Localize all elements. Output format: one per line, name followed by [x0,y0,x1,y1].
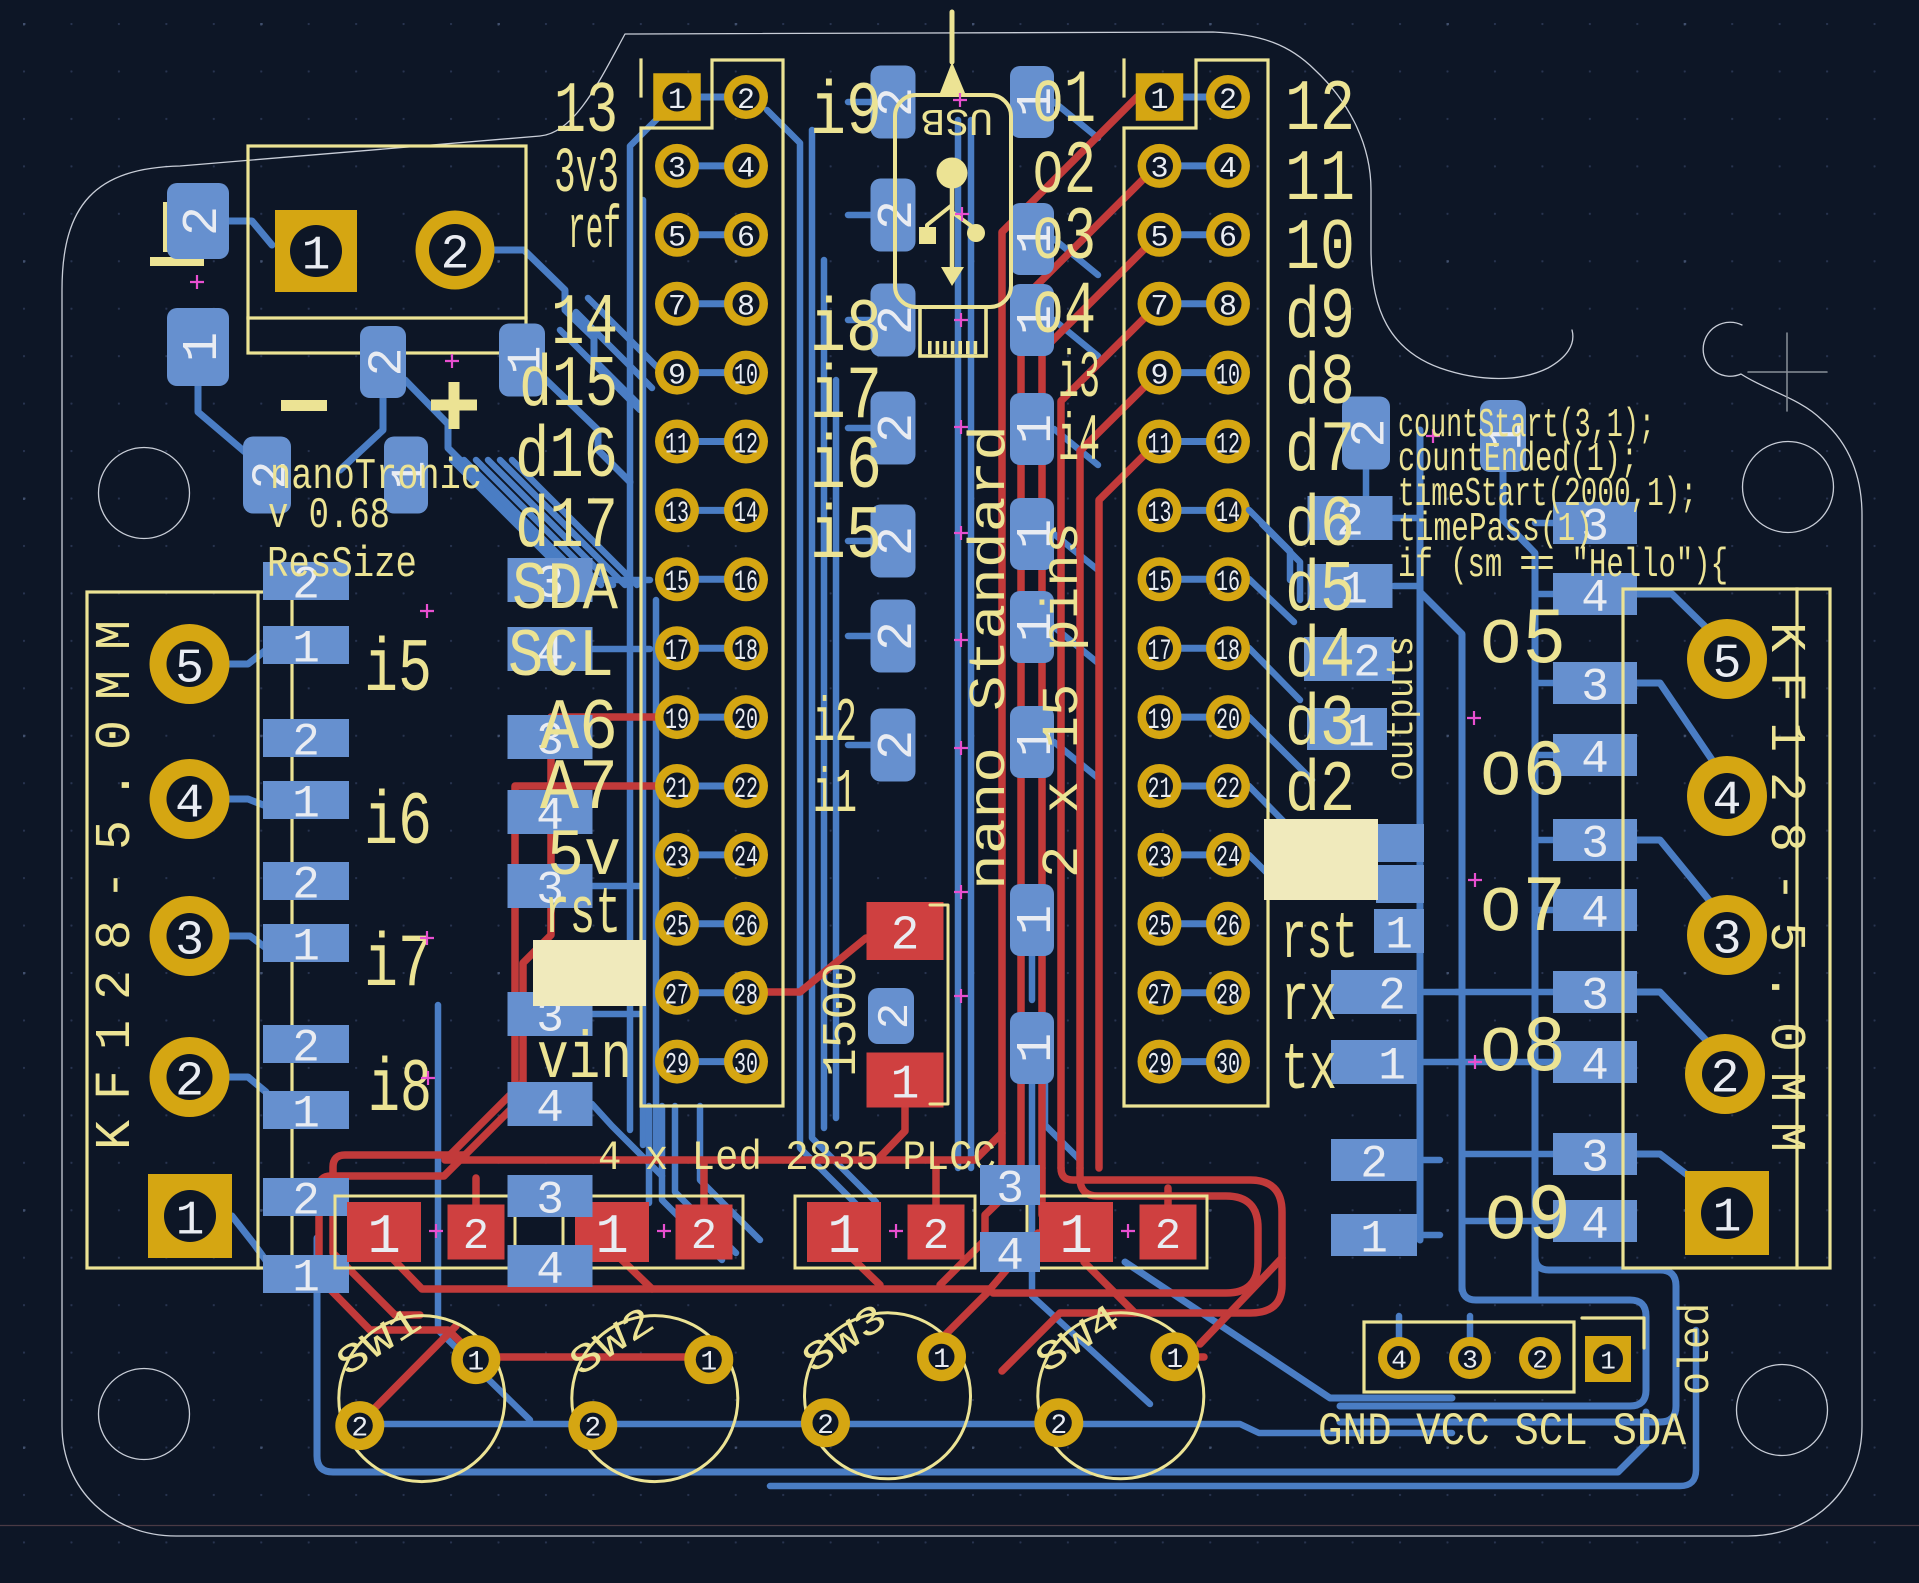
svg-text:10: 10 [734,359,758,393]
svg-text:4: 4 [1219,153,1237,187]
svg-text:11: 11 [665,428,689,462]
svg-text:tx: tx [1281,1033,1337,1108]
svg-text:2: 2 [871,1003,921,1029]
svg-text:d15: d15 [519,345,618,427]
svg-text:3: 3 [668,153,686,187]
svg-text:o3: o3 [1032,196,1096,281]
svg-text:1: 1 [933,1345,950,1376]
svg-text:4: 4 [1713,774,1742,828]
svg-text:1: 1 [595,1205,629,1269]
svg-text:22: 22 [734,773,758,807]
svg-text:29: 29 [665,1048,689,1082]
svg-text:26: 26 [1216,911,1240,945]
svg-text:1: 1 [1378,1041,1406,1093]
svg-text:7: 7 [668,291,686,325]
svg-text:nano Standard: nano Standard [961,425,1020,890]
svg-text:i5: i5 [810,495,882,580]
svg-text:2: 2 [1353,638,1381,690]
svg-text:2: 2 [292,860,320,912]
svg-text:3: 3 [536,1175,564,1227]
svg-text:2: 2 [817,1411,834,1442]
svg-text:5: 5 [175,642,204,696]
svg-text:oled: oled [1672,1303,1722,1395]
svg-text:i8: i8 [368,1048,432,1133]
svg-text:SDA: SDA [512,552,618,629]
svg-text:1: 1 [302,229,331,283]
svg-text:21: 21 [1148,773,1172,807]
svg-text:2: 2 [292,717,320,769]
svg-text:1: 1 [1009,1033,1066,1063]
svg-text:13: 13 [1148,497,1172,531]
svg-text:i9: i9 [810,71,882,156]
svg-text:USB: USB [921,98,993,141]
svg-text:2: 2 [175,1055,204,1109]
svg-text:9: 9 [1150,359,1168,393]
svg-text:3: 3 [1713,913,1742,967]
svg-text:1: 1 [292,1253,320,1305]
svg-text:1: 1 [1009,905,1066,935]
svg-text:8: 8 [1219,291,1237,325]
svg-text:3: 3 [1150,153,1168,187]
svg-text:23: 23 [665,842,689,876]
svg-text:o7: o7 [1479,864,1566,955]
svg-text:22: 22 [1216,773,1240,807]
svg-text:d7: d7 [1285,410,1355,492]
svg-text:7: 7 [1150,291,1168,325]
svg-text:2: 2 [1219,84,1237,118]
svg-text:4: 4 [737,153,755,187]
svg-text:27: 27 [665,980,689,1014]
svg-text:1: 1 [1600,1346,1616,1376]
svg-text:12: 12 [1216,428,1240,462]
svg-text:ResSize: ResSize [267,540,417,590]
svg-text:4: 4 [1581,734,1609,786]
svg-text:3: 3 [1581,662,1609,714]
svg-text:30: 30 [734,1048,758,1082]
svg-text:4: 4 [536,1245,564,1297]
svg-text:8: 8 [737,291,755,325]
svg-text:17: 17 [665,635,689,669]
svg-text:if (sm == "Hello"){: if (sm == "Hello"){ [1398,543,1728,589]
svg-text:1: 1 [1713,1191,1742,1245]
svg-text:1: 1 [1166,1345,1183,1376]
svg-text:2 x 15 pins: 2 x 15 pins [1034,522,1093,878]
svg-text:1500: 1500 [816,962,870,1077]
svg-text:6: 6 [1219,222,1237,256]
svg-text:2: 2 [441,228,470,282]
svg-text:2: 2 [1711,1052,1740,1106]
svg-text:1: 1 [467,1348,484,1379]
svg-text:1: 1 [700,1348,717,1379]
svg-text:9: 9 [668,359,686,393]
svg-text:14: 14 [734,497,758,531]
svg-text:3: 3 [1581,971,1609,1023]
svg-text:4: 4 [996,1231,1024,1283]
svg-text:24: 24 [1216,842,1240,876]
svg-text:4: 4 [1581,889,1609,941]
svg-text:14: 14 [1216,497,1240,531]
svg-text:2: 2 [175,206,232,236]
svg-text:15: 15 [665,566,689,600]
svg-text:5: 5 [668,222,686,256]
svg-text:o6: o6 [1479,728,1566,819]
svg-text:1: 1 [292,779,320,831]
svg-text:i5: i5 [364,628,432,713]
svg-text:28: 28 [734,980,758,1014]
svg-text:4: 4 [1581,1041,1609,1093]
svg-text:16: 16 [734,566,758,600]
svg-text:6: 6 [737,222,755,256]
svg-text:1: 1 [292,624,320,676]
svg-text:2: 2 [292,1023,320,1075]
svg-text:20: 20 [1216,704,1240,738]
svg-text:21: 21 [665,773,689,807]
svg-text:rx: rx [1281,964,1337,1039]
svg-text:4: 4 [1391,1345,1407,1375]
svg-text:2: 2 [870,730,927,760]
svg-text:3: 3 [175,914,204,968]
svg-text:2: 2 [737,84,755,118]
svg-text:2: 2 [891,909,920,963]
svg-text:16: 16 [1216,566,1240,600]
svg-text:i4: i4 [1058,404,1100,479]
svg-text:2: 2 [1532,1345,1548,1375]
svg-text:15: 15 [1148,566,1172,600]
svg-text:2: 2 [292,1176,320,1228]
svg-text:1: 1 [668,84,686,118]
svg-text:4 x Led 2835 PLCC: 4 x Led 2835 PLCC [598,1134,996,1182]
svg-text:2: 2 [1155,1212,1181,1262]
svg-text:o5: o5 [1479,596,1566,687]
svg-text:GND VCC SCL SDA: GND VCC SCL SDA [1318,1406,1686,1458]
svg-text:3: 3 [996,1164,1024,1216]
svg-text:i1: i1 [813,759,857,830]
svg-text:ref: ref [568,198,621,266]
svg-text:4: 4 [1581,1200,1609,1252]
svg-text:4: 4 [175,777,204,831]
svg-text:12: 12 [734,428,758,462]
svg-text:1: 1 [1385,910,1413,962]
svg-text:29: 29 [1148,1048,1172,1082]
svg-text:2: 2 [351,1414,368,1445]
svg-text:10: 10 [1216,359,1240,393]
svg-text:o9: o9 [1484,1172,1571,1263]
svg-text:24: 24 [734,842,758,876]
svg-text:20: 20 [734,704,758,738]
svg-text:18: 18 [1216,635,1240,669]
svg-text:3: 3 [1462,1345,1478,1375]
svg-text:2: 2 [923,1212,949,1262]
svg-text:1: 1 [176,1194,205,1248]
svg-text:17: 17 [1148,635,1172,669]
svg-text:27: 27 [1148,980,1172,1014]
svg-text:2: 2 [584,1414,601,1445]
svg-text:1: 1 [1059,1205,1093,1269]
svg-text:30: 30 [1216,1048,1240,1082]
svg-text:18: 18 [734,635,758,669]
svg-text:3: 3 [1581,819,1609,871]
svg-text:1: 1 [891,1058,920,1112]
svg-text:1: 1 [292,922,320,974]
svg-text:13: 13 [665,497,689,531]
svg-text:25: 25 [665,911,689,945]
svg-text:2: 2 [691,1212,717,1262]
svg-text:19: 19 [665,704,689,738]
svg-text:SCL: SCL [508,619,614,696]
svg-text:1: 1 [292,1089,320,1141]
svg-text:i7: i7 [364,923,432,1008]
svg-text:i6: i6 [364,781,432,866]
svg-text:28: 28 [1216,980,1240,1014]
svg-text:1: 1 [175,332,232,362]
svg-text:o8: o8 [1479,1004,1566,1095]
svg-text:v 0.68: v 0.68 [268,491,390,541]
svg-text:2: 2 [463,1212,489,1262]
svg-text:2: 2 [1050,1411,1067,1442]
svg-text:11: 11 [1148,428,1172,462]
svg-text:vin: vin [537,1022,632,1097]
svg-text:outputs: outputs [1381,636,1424,781]
svg-text:2: 2 [870,200,927,230]
svg-text:5: 5 [1150,222,1168,256]
svg-text:1: 1 [1360,1214,1388,1266]
svg-text:2: 2 [1360,1139,1388,1191]
svg-text:5: 5 [1713,637,1742,691]
svg-text:1: 1 [1150,84,1168,118]
svg-text:2: 2 [361,348,415,377]
svg-text:2: 2 [1378,971,1406,1023]
svg-text:i2: i2 [813,688,857,759]
svg-text:19: 19 [1148,704,1172,738]
svg-text:3: 3 [1581,1133,1609,1185]
svg-text:1: 1 [827,1205,861,1269]
svg-text:23: 23 [1148,842,1172,876]
svg-text:KF128-5.0MM: KF128-5.0MM [88,620,145,1150]
svg-text:25: 25 [1148,911,1172,945]
svg-text:26: 26 [734,911,758,945]
svg-text:2: 2 [870,621,927,651]
svg-text:A7: A7 [540,748,618,830]
svg-text:1: 1 [367,1205,401,1269]
